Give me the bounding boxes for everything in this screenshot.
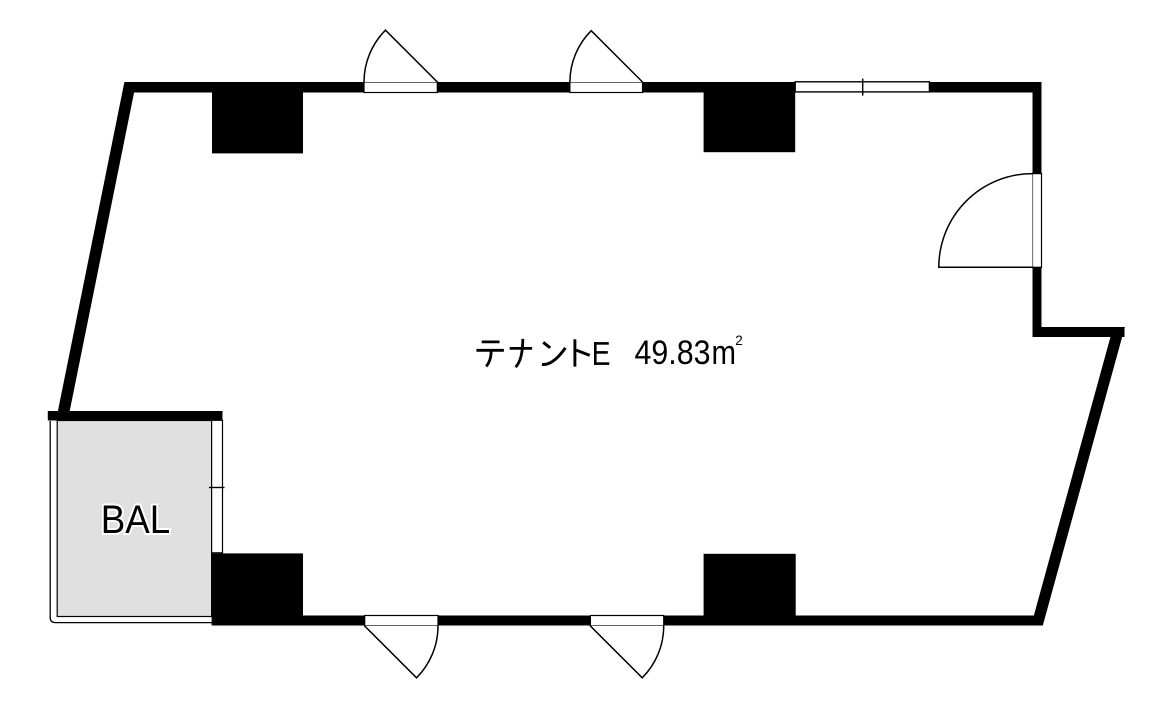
svg-text:49.83: 49.83 <box>635 334 711 372</box>
svg-text:BAL: BAL <box>101 498 171 542</box>
svg-text:m: m <box>712 334 737 372</box>
svg-text:2: 2 <box>735 333 743 348</box>
